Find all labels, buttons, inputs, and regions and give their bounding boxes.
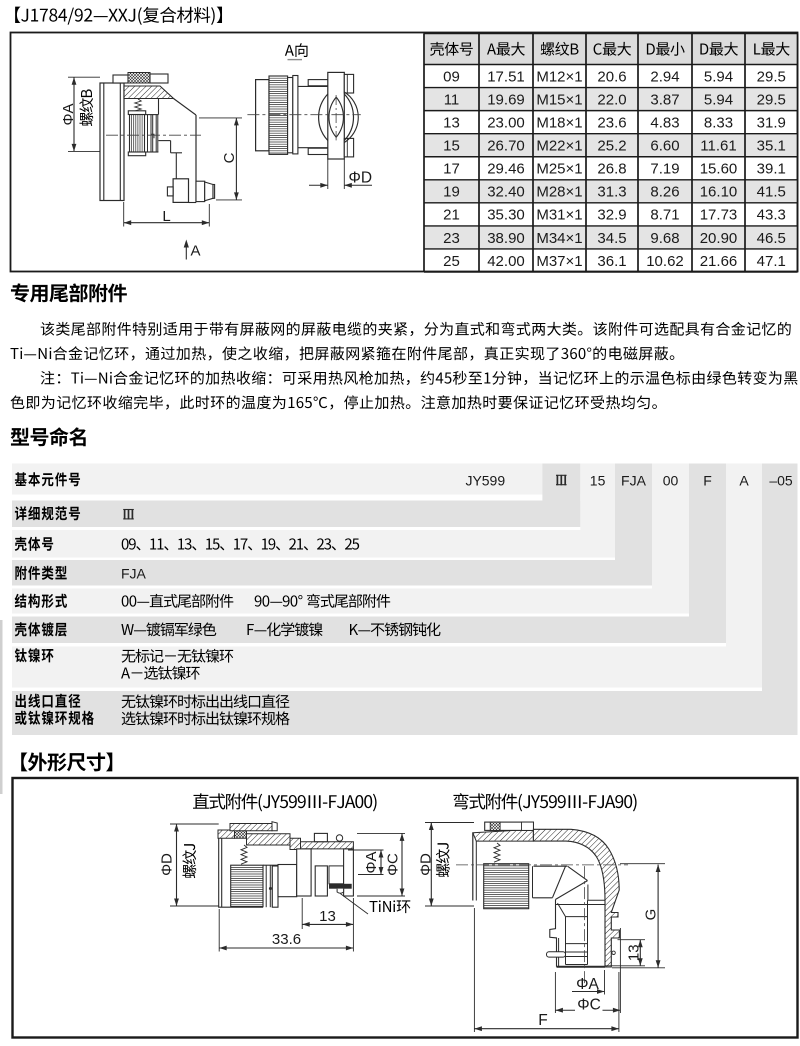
svg-text:FJA: FJA bbox=[621, 473, 647, 489]
svg-text:10.62: 10.62 bbox=[646, 253, 684, 270]
svg-text:13: 13 bbox=[626, 944, 643, 961]
svg-text:6.60: 6.60 bbox=[650, 138, 679, 155]
svg-text:31.9: 31.9 bbox=[757, 114, 786, 131]
svg-text:ΦD: ΦD bbox=[418, 853, 435, 876]
svg-text:ΦD: ΦD bbox=[159, 853, 176, 876]
svg-text:43.3: 43.3 bbox=[757, 207, 786, 224]
svg-text:ΦA: ΦA bbox=[363, 852, 380, 874]
svg-text:A: A bbox=[739, 473, 749, 489]
svg-text:00: 00 bbox=[663, 473, 679, 489]
svg-text:21.66: 21.66 bbox=[700, 253, 738, 270]
svg-text:33.6: 33.6 bbox=[272, 931, 301, 948]
svg-text:38.90: 38.90 bbox=[487, 230, 525, 247]
svg-text:M28×1: M28×1 bbox=[536, 184, 582, 201]
svg-text:5.94: 5.94 bbox=[704, 91, 733, 108]
svg-text:26.70: 26.70 bbox=[487, 138, 525, 155]
svg-text:26.8: 26.8 bbox=[597, 161, 626, 178]
svg-text:M34×1: M34×1 bbox=[536, 230, 582, 247]
svg-text:L: L bbox=[162, 208, 170, 225]
svg-text:22.0: 22.0 bbox=[597, 91, 626, 108]
svg-text:15.60: 15.60 bbox=[700, 161, 738, 178]
svg-text:47.1: 47.1 bbox=[757, 253, 786, 270]
svg-text:35.30: 35.30 bbox=[487, 207, 525, 224]
svg-text:17: 17 bbox=[443, 161, 460, 178]
svg-text:8.33: 8.33 bbox=[704, 114, 733, 131]
svg-text:31.3: 31.3 bbox=[597, 184, 626, 201]
svg-text:15: 15 bbox=[590, 473, 606, 489]
svg-text:15: 15 bbox=[443, 138, 460, 155]
svg-text:F: F bbox=[538, 1012, 547, 1029]
svg-text:M31×1: M31×1 bbox=[536, 207, 582, 224]
svg-text:11.61: 11.61 bbox=[700, 138, 736, 155]
svg-text:42.00: 42.00 bbox=[487, 253, 525, 270]
svg-text:17.73: 17.73 bbox=[700, 207, 738, 224]
svg-text:8.26: 8.26 bbox=[650, 184, 679, 201]
svg-text:25: 25 bbox=[443, 253, 460, 270]
svg-text:13: 13 bbox=[319, 908, 336, 925]
svg-text:FJA: FJA bbox=[121, 566, 147, 582]
svg-text:36.1: 36.1 bbox=[597, 253, 626, 270]
svg-text:21: 21 bbox=[443, 207, 460, 224]
svg-text:32.40: 32.40 bbox=[487, 184, 525, 201]
svg-text:39.1: 39.1 bbox=[757, 161, 786, 178]
svg-text:35.1: 35.1 bbox=[757, 138, 786, 155]
svg-text:29.46: 29.46 bbox=[487, 161, 525, 178]
svg-text:20.6: 20.6 bbox=[597, 68, 626, 85]
svg-text:23.00: 23.00 bbox=[487, 114, 525, 131]
svg-text:M15×1: M15×1 bbox=[536, 91, 582, 108]
svg-text:ΦC: ΦC bbox=[577, 997, 601, 1014]
svg-text:M12×1: M12×1 bbox=[536, 68, 582, 85]
svg-text:2.94: 2.94 bbox=[650, 68, 679, 85]
svg-text:3.87: 3.87 bbox=[650, 91, 679, 108]
svg-text:ΦD: ΦD bbox=[349, 170, 373, 187]
svg-text:23: 23 bbox=[443, 230, 460, 247]
svg-text:16.10: 16.10 bbox=[700, 184, 738, 201]
svg-text:19: 19 bbox=[443, 184, 460, 201]
svg-text:41.5: 41.5 bbox=[757, 184, 786, 201]
svg-text:JY599: JY599 bbox=[465, 473, 505, 489]
svg-text:19.69: 19.69 bbox=[487, 91, 525, 108]
svg-text:25.2: 25.2 bbox=[597, 138, 626, 155]
svg-text:ΦA: ΦA bbox=[576, 976, 599, 993]
svg-text:ΦA: ΦA bbox=[60, 104, 77, 126]
svg-text:29.5: 29.5 bbox=[757, 68, 786, 85]
svg-text:M37×1: M37×1 bbox=[536, 253, 582, 270]
svg-text:5.94: 5.94 bbox=[704, 68, 733, 85]
svg-text:29.5: 29.5 bbox=[757, 91, 786, 108]
svg-text:C: C bbox=[221, 152, 238, 163]
svg-text:M18×1: M18×1 bbox=[536, 114, 582, 131]
svg-text:M22×1: M22×1 bbox=[536, 138, 582, 155]
svg-text:09: 09 bbox=[443, 68, 460, 85]
svg-text:20.90: 20.90 bbox=[700, 230, 738, 247]
svg-text:46.5: 46.5 bbox=[757, 230, 786, 247]
svg-text:G: G bbox=[643, 909, 660, 921]
svg-text:9.68: 9.68 bbox=[650, 230, 679, 247]
svg-text:32.9: 32.9 bbox=[597, 207, 626, 224]
svg-text:7.19: 7.19 bbox=[650, 161, 679, 178]
svg-text:4.83: 4.83 bbox=[650, 114, 679, 131]
svg-text:34.5: 34.5 bbox=[597, 230, 626, 247]
svg-text:11: 11 bbox=[444, 91, 460, 108]
svg-text:8.71: 8.71 bbox=[650, 207, 679, 224]
svg-text:17.51: 17.51 bbox=[487, 68, 525, 85]
svg-text:ΦC: ΦC bbox=[385, 853, 402, 876]
svg-text:A: A bbox=[191, 243, 201, 260]
svg-text:13: 13 bbox=[443, 114, 460, 131]
svg-text:F: F bbox=[703, 473, 712, 489]
svg-text:–05: –05 bbox=[769, 473, 793, 489]
svg-text:M25×1: M25×1 bbox=[536, 161, 582, 178]
svg-text:23.6: 23.6 bbox=[597, 114, 626, 131]
